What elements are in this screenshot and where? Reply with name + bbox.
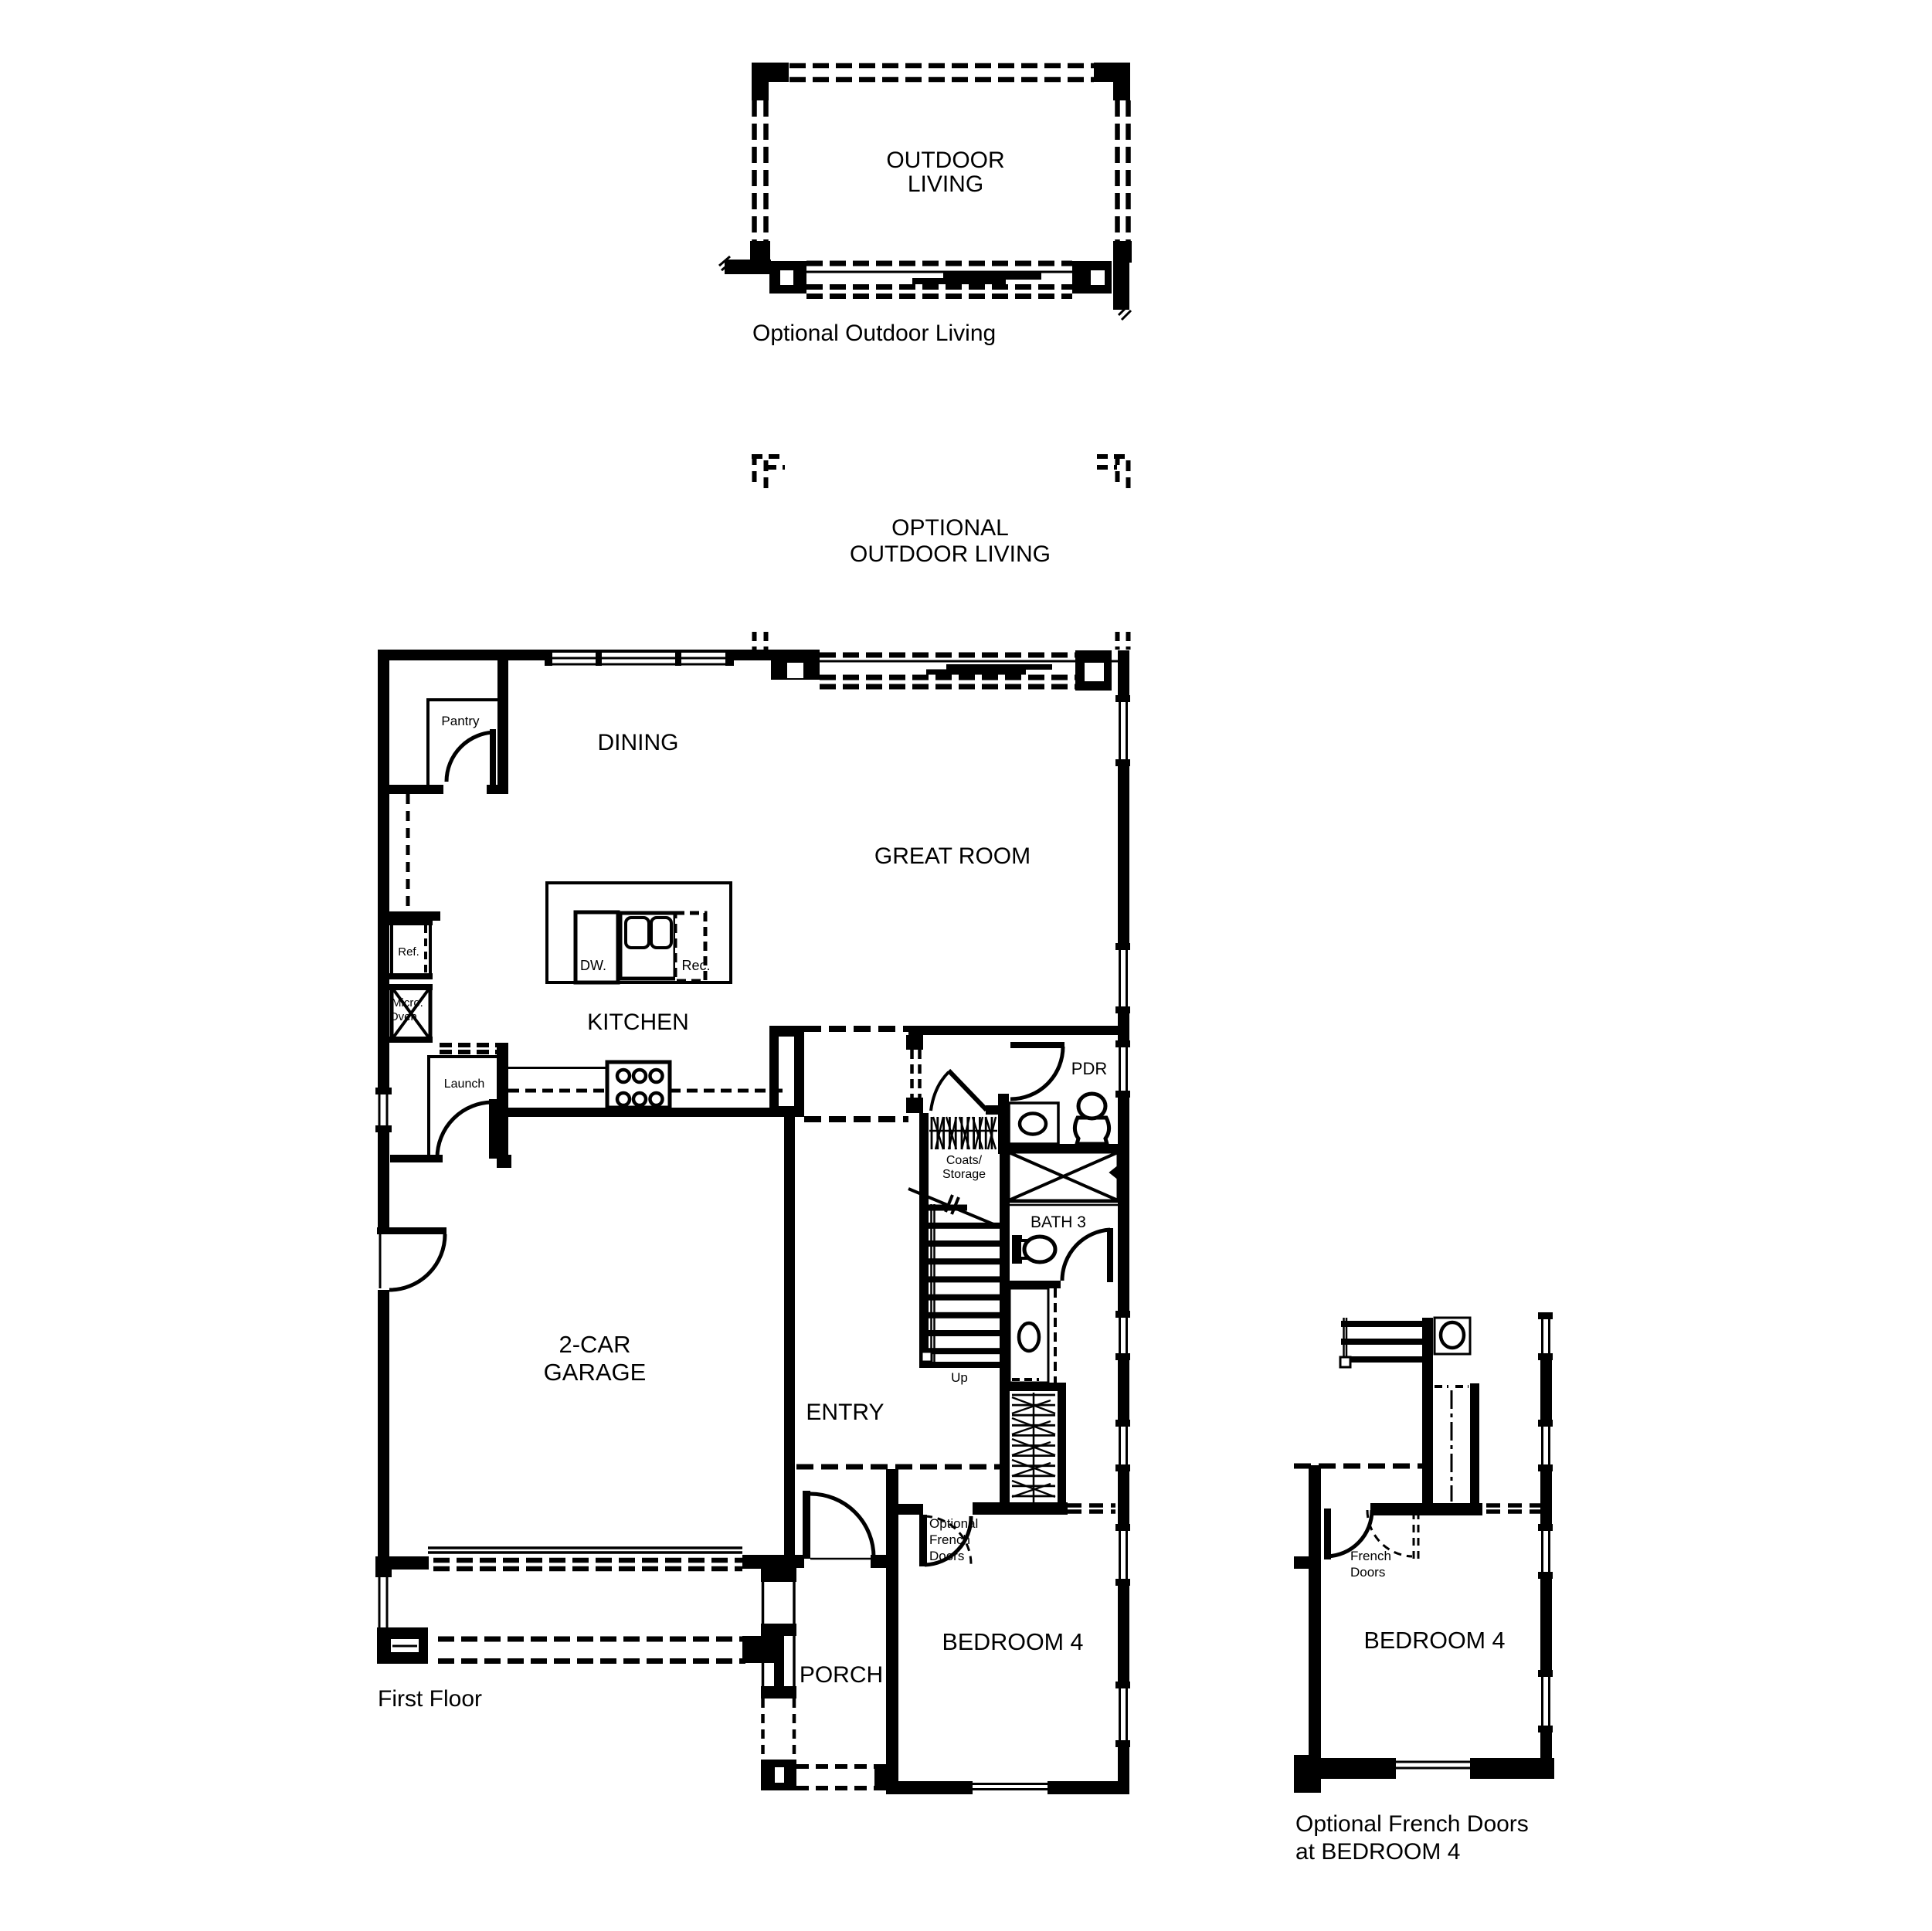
svg-text:OUTDOOR LIVING: OUTDOOR LIVING (850, 541, 1051, 567)
svg-text:Doors: Doors (1350, 1565, 1385, 1580)
svg-text:OUTDOOR: OUTDOOR (886, 148, 1004, 173)
svg-text:LIVING: LIVING (908, 171, 983, 197)
svg-text:Ref.: Ref. (398, 945, 419, 959)
svg-text:Storage: Storage (942, 1168, 986, 1181)
svg-text:Pantry: Pantry (441, 714, 480, 728)
svg-text:Micro.: Micro. (392, 996, 423, 1010)
svg-text:BEDROOM 4: BEDROOM 4 (942, 1629, 1083, 1655)
svg-text:ENTRY: ENTRY (806, 1400, 884, 1425)
svg-text:DINING: DINING (598, 730, 679, 755)
svg-text:BEDROOM 4: BEDROOM 4 (1363, 1627, 1505, 1654)
svg-text:PDR: PDR (1071, 1059, 1107, 1078)
svg-text:Optional: Optional (929, 1516, 978, 1531)
svg-text:Up: Up (951, 1370, 968, 1385)
svg-text:French: French (1350, 1549, 1391, 1563)
svg-text:DW.: DW. (580, 958, 606, 973)
svg-text:GREAT ROOM: GREAT ROOM (874, 843, 1031, 869)
svg-text:OPTIONAL: OPTIONAL (891, 515, 1009, 541)
svg-text:at BEDROOM 4: at BEDROOM 4 (1295, 1839, 1460, 1865)
svg-text:French: French (929, 1532, 970, 1547)
svg-text:Launch: Launch (444, 1077, 485, 1091)
svg-text:Rec.: Rec. (681, 958, 710, 973)
svg-text:Optional Outdoor Living: Optional Outdoor Living (752, 321, 996, 346)
svg-text:Doors: Doors (929, 1549, 964, 1563)
svg-text:KITCHEN: KITCHEN (587, 1010, 689, 1035)
svg-text:BATH 3: BATH 3 (1031, 1213, 1086, 1231)
svg-text:Oven: Oven (389, 1010, 417, 1023)
svg-text:PORCH: PORCH (800, 1662, 883, 1688)
svg-text:First Floor: First Floor (378, 1686, 482, 1712)
svg-text:Coats/: Coats/ (946, 1154, 983, 1167)
svg-text:2-CAR: 2-CAR (559, 1331, 630, 1358)
svg-text:GARAGE: GARAGE (544, 1359, 647, 1386)
svg-text:Optional French Doors: Optional French Doors (1295, 1811, 1529, 1837)
